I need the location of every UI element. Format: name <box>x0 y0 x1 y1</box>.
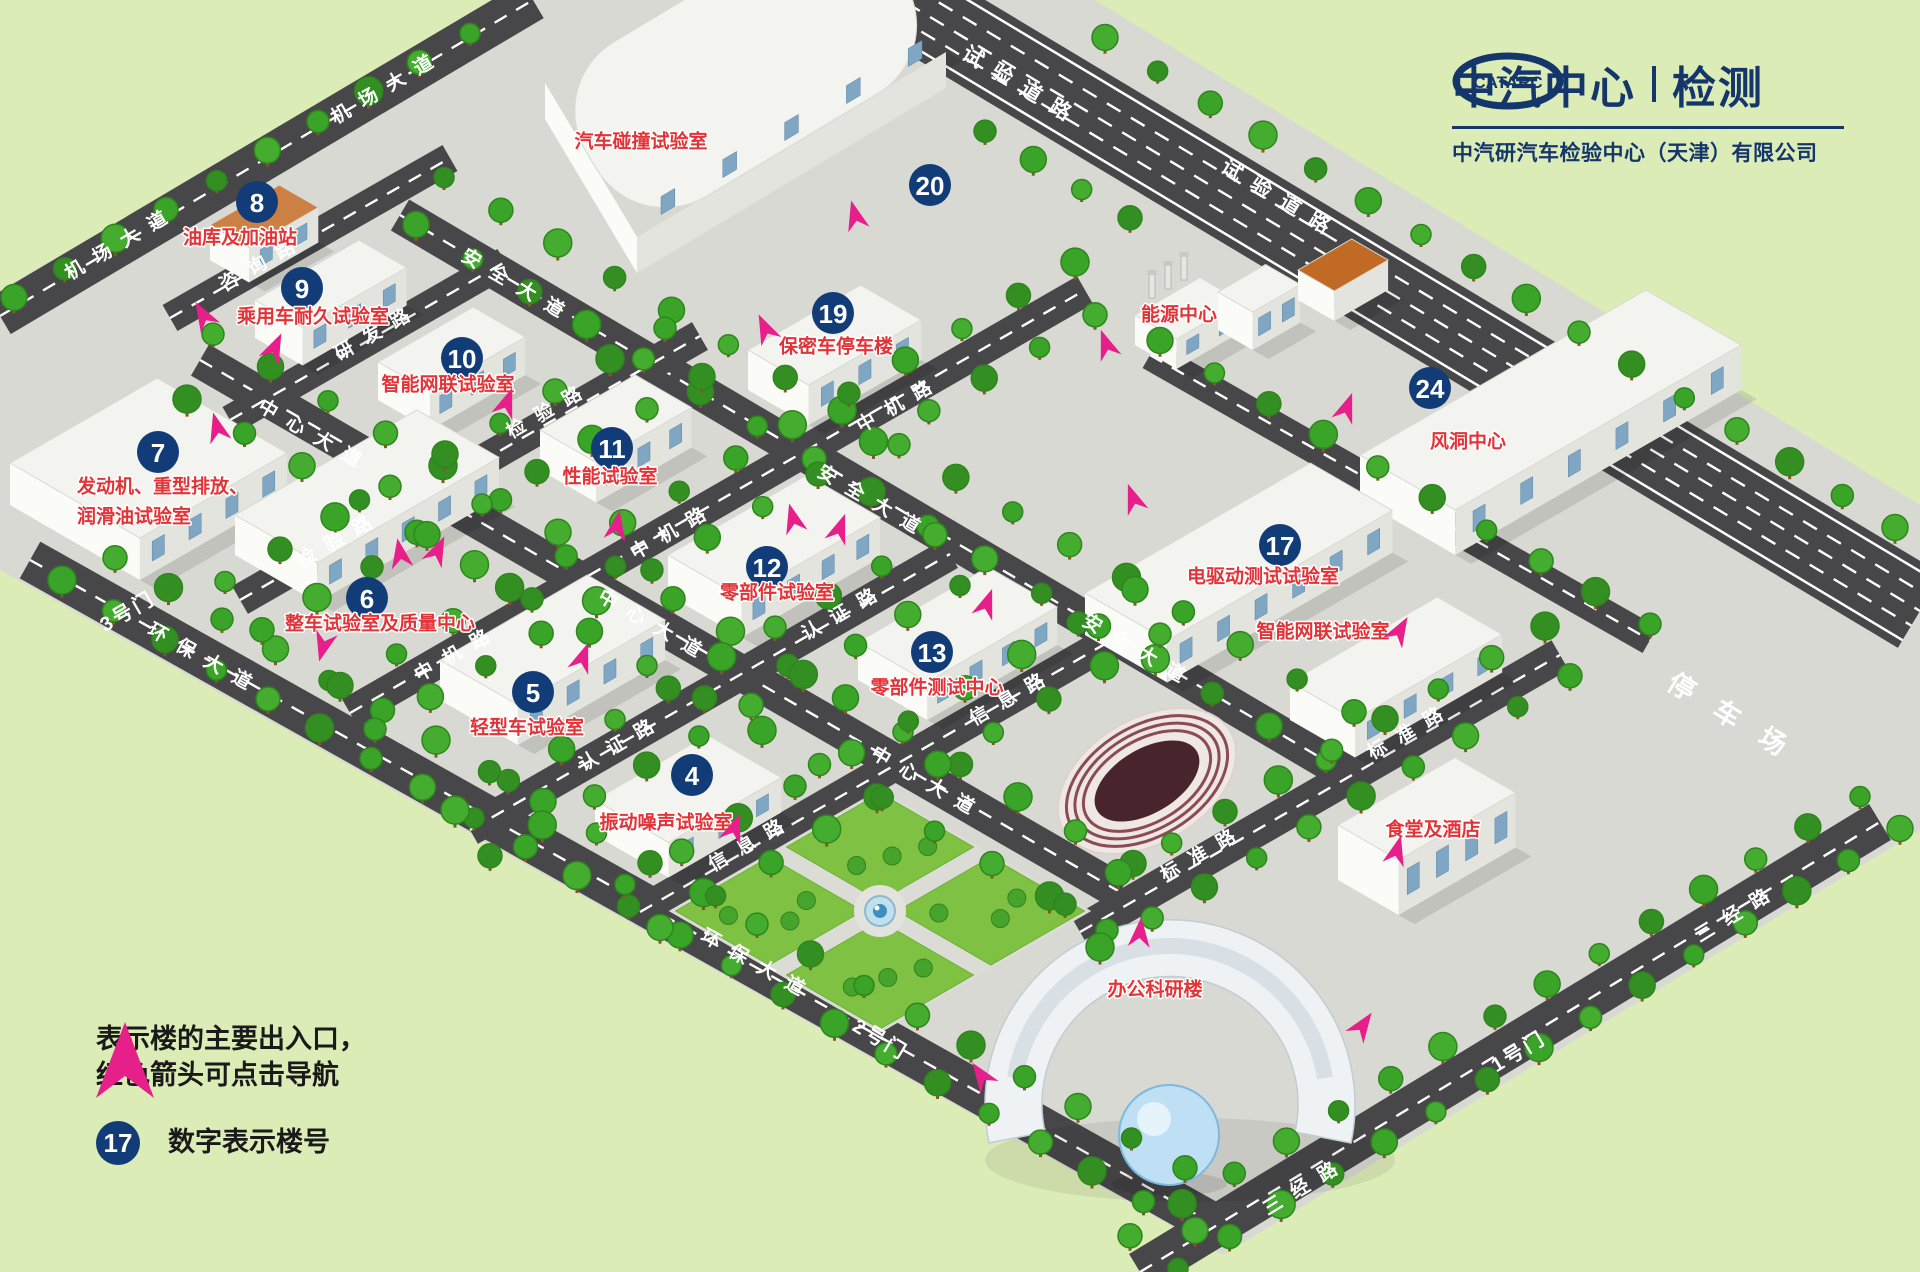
building-label-b7-l1: 润滑油试验室 <box>77 505 191 528</box>
building-label-b13: 零部件测试中心 <box>869 676 1003 699</box>
building-badge-num-b9: 9 <box>295 274 309 304</box>
garden-tree <box>930 904 948 922</box>
tree <box>1168 1259 1188 1272</box>
brand-block: CATARC 中汽中心 检测 中汽研汽车检验中心（天津）有限公司 <box>1452 52 1892 167</box>
tree <box>1118 1224 1142 1251</box>
tree <box>478 844 502 871</box>
building-badge-num-b10: 10 <box>448 344 477 374</box>
garden-tree <box>879 969 897 987</box>
building-badge-num-b20: 20 <box>916 171 945 201</box>
building-badge-num-b19: 19 <box>819 299 848 329</box>
building-badge-num-b7: 7 <box>151 438 165 468</box>
garden-tree <box>848 857 866 875</box>
building-label-energy: 能源中心 <box>1141 303 1217 326</box>
building-badge-num-b24: 24 <box>1416 374 1445 404</box>
building-label-b20: 汽车碰撞试验室 <box>574 130 707 153</box>
garden-tree <box>719 907 737 925</box>
catarc-logo-icon: CATARC <box>1452 52 1564 110</box>
building-label-b8: 油库及加油站 <box>183 226 297 249</box>
building-badge-num-b6: 6 <box>360 584 374 614</box>
building-label-b5: 轻型车试验室 <box>470 716 584 739</box>
building-label-b17: 电驱动测试试验室 <box>1187 565 1339 588</box>
building-label-intelli2: 智能网联试验室 <box>1256 620 1389 643</box>
building-badge-num-b5: 5 <box>526 678 540 708</box>
building-badge-num-b4: 4 <box>685 761 700 791</box>
garden-tree <box>991 910 1009 928</box>
campus-map-page: 试验道路试验道路安全大道安全大道安全大道中心大道中心大道中心大道环保大道环保大道… <box>0 0 1920 1272</box>
building-label-b6: 整车试验室及质量中心 <box>285 612 475 635</box>
building-label-canteen: 食堂及酒店 <box>1385 818 1480 841</box>
building-label-b12: 零部件试验室 <box>719 581 834 604</box>
catarc-logo-text: CATARC <box>1473 73 1542 92</box>
fountain-glint <box>875 906 880 911</box>
building-badge-num-b8: 8 <box>250 188 264 218</box>
garden-tree <box>883 847 901 865</box>
brand-company: 中汽研汽车检验中心（天津）有限公司 <box>1452 137 1892 167</box>
entrance-arrow-icon <box>96 1022 154 1098</box>
brand-divider <box>1652 66 1656 102</box>
fountain-center <box>873 904 887 918</box>
building-label-b10: 智能网联试验室 <box>381 373 514 396</box>
building-label-b11: 性能试验室 <box>562 465 657 488</box>
garden-tree <box>797 892 815 910</box>
legend-badge: 17 <box>96 1121 140 1165</box>
legend-badge-desc: 数字表示楼号 <box>168 1125 330 1161</box>
brand-rule <box>1452 126 1844 129</box>
map-legend: 表示楼的主要出入口， 红色箭头可点击导航 17 数字表示楼号 <box>96 1022 366 1165</box>
building-badge-num-b13: 13 <box>918 638 947 668</box>
garden-tree <box>781 912 799 930</box>
brand-suffix: 检测 <box>1672 52 1764 116</box>
garden-tree <box>1008 889 1026 907</box>
building-label-b9: 乘用车耐久试验室 <box>236 305 389 328</box>
building-label-b24: 风洞中心 <box>1430 430 1506 453</box>
building-badge-num-b12: 12 <box>753 553 782 583</box>
building-label-b4: 振动噪声试验室 <box>599 811 732 834</box>
building-badge-num-b17: 17 <box>1266 531 1295 561</box>
garden-tree <box>914 959 932 977</box>
building-label-b19: 保密车停车楼 <box>778 335 893 358</box>
building-label-b7-l0: 发动机、重型排放、 <box>76 475 248 498</box>
building-badge-num-b11: 11 <box>598 434 626 464</box>
building-label-office: 办公科研楼 <box>1107 978 1202 1001</box>
